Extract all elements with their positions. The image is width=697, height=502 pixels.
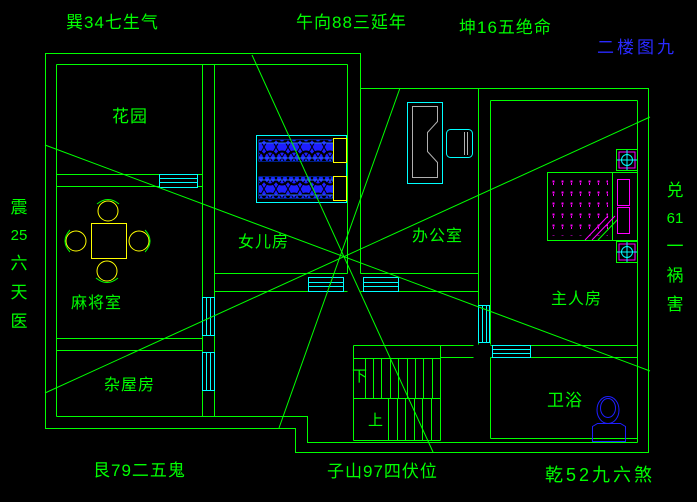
room-label-storage-room: 杂屋房 [104,376,155,394]
compass-label-bottom-center: 子山97四伏位 [327,463,438,480]
bed-pillow [334,139,347,163]
bed-pillow [334,177,347,201]
compass-label-right: 兑 61 一 祸 害 [663,182,687,325]
nightstand-lamp [617,150,638,171]
daughter-room-beds [257,136,347,203]
compass-label-top-left: 巽34七生气 [66,14,159,31]
drawing-title: 二楼图九 [597,39,677,56]
room-label-mahjong-room: 麻将室 [71,294,122,312]
stairs-down-label: 下 [352,368,368,385]
mattress-dot-grid [551,176,608,236]
compass-char: 一 [667,238,684,255]
window-hall-master [479,306,490,343]
compass-char: 六 [11,255,28,272]
compass-char: 医 [11,313,28,330]
compass-char: 61 [667,211,684,226]
office-desk [408,103,473,184]
window-storage [203,353,215,391]
window-office [364,278,399,292]
window-symbols [160,175,531,391]
room-label-office: 办公室 [412,227,463,245]
bed-mattress [259,177,333,198]
master-bed [548,173,638,241]
compass-char: 天 [11,284,28,301]
room-label-master-room: 主人房 [551,290,602,308]
compass-label-bottom-right: 乾52九六煞 [545,466,655,484]
mahjong-table-set [65,200,150,283]
nightstand-lamp [617,242,638,263]
window-garden [160,175,198,188]
toilet [593,397,626,442]
compass-label-top-center: 午向88三延年 [296,14,407,31]
compass-label-bottom-left: 艮79二五鬼 [93,462,186,479]
compass-label-top-right: 坤16五绝命 [459,19,552,36]
room-label-bathroom: 卫浴 [547,391,583,410]
room-label-garden: 花园 [112,107,148,126]
window-daughter-room [309,278,344,292]
floor-plan-drawing: 花园 女儿房 办公室 麻将室 杂屋房 主人房 卫浴 下 上 [0,0,697,502]
pillow [618,208,630,234]
window-master-bath [493,346,531,358]
staircase [354,346,441,441]
compass-char: 25 [11,228,28,243]
compass-char: 兑 [667,182,684,199]
compass-char: 害 [667,296,684,313]
stairs-up-label: 上 [368,412,384,429]
office-chair [447,130,473,158]
cad-canvas[interactable]: 花园 女儿房 办公室 麻将室 杂屋房 主人房 卫浴 下 上 巽34七生气 午向8… [0,0,697,502]
pillow [618,180,630,206]
compass-label-left: 震 25 六 天 医 [7,199,31,342]
compass-char: 祸 [667,267,684,284]
room-label-daughter-room: 女儿房 [238,232,289,251]
compass-char: 震 [11,199,28,216]
